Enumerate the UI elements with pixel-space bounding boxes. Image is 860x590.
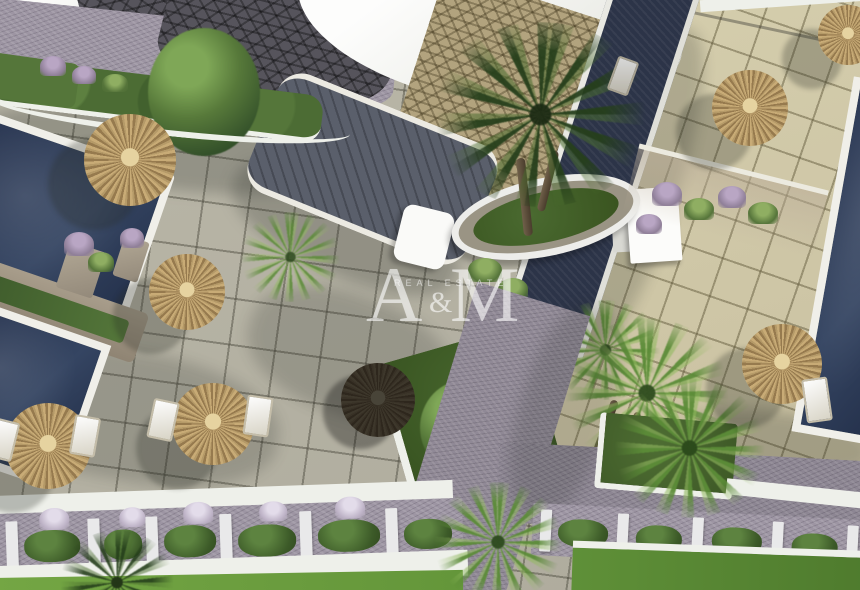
watermark-ampersand: & [429,288,452,318]
straw-umbrella-5-shaded [341,363,415,437]
straw-umbrella-2 [149,254,225,330]
plant-tuft [684,198,714,220]
sun-lounger [242,394,273,437]
plant-tuft [259,501,288,522]
palm-crown-bottom [432,482,564,590]
plant-tuft [39,507,70,530]
plant-tuft [64,232,94,256]
plant-tuft [335,496,366,519]
wall-shrub [238,524,297,558]
watermark-letter-a: A [366,256,422,334]
straw-umbrella-3 [172,383,254,465]
plant-tuft [718,186,746,208]
watermark: A REAL ESTATE & M [366,264,576,338]
watermark-letter-m: M [450,256,519,334]
wall-pillar [219,514,233,562]
plant-tuft [120,228,144,248]
plant-tuft [72,66,96,84]
wall-pillar [299,511,313,559]
palm-crown-overhang [238,212,343,302]
plant-tuft [119,507,146,528]
straw-umbrella-1 [84,114,176,206]
straw-umbrella-6 [712,70,788,146]
plant-tuft [652,182,682,206]
plant-tuft [183,501,214,524]
plant-tuft [636,214,662,234]
wall-pillar [385,508,399,556]
wall-pillar [5,521,19,569]
plant-tuft [88,252,114,272]
wall-shrub [317,519,380,553]
palm-crown-center [428,22,653,207]
plant-tuft [40,56,66,76]
aerial-render: A REAL ESTATE & M [0,0,860,590]
wall-shrub [164,524,217,558]
palm-crown-right-low [612,378,767,518]
plant-tuft [748,202,778,224]
